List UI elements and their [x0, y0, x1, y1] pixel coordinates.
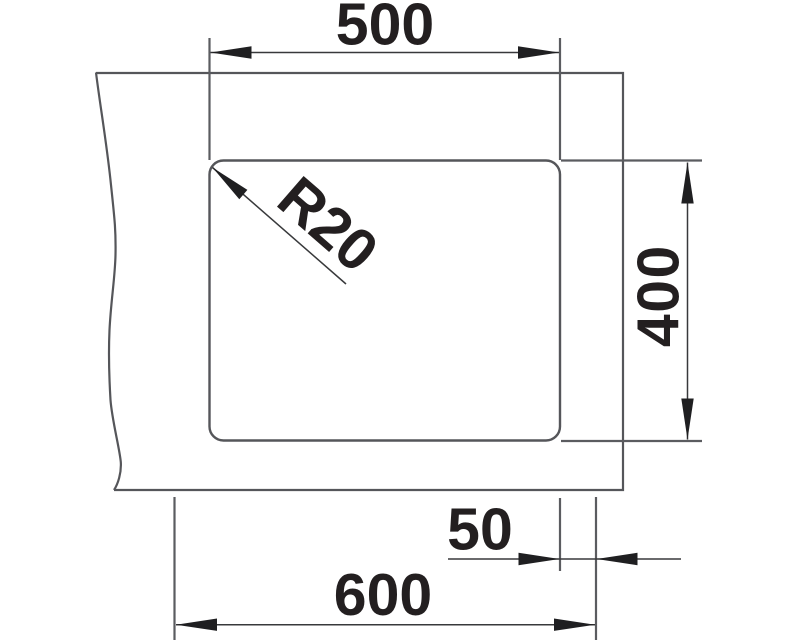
svg-text:600: 600 — [334, 562, 432, 628]
svg-text:500: 500 — [336, 0, 434, 58]
svg-text:400: 400 — [626, 244, 692, 347]
svg-text:50: 50 — [447, 497, 513, 563]
